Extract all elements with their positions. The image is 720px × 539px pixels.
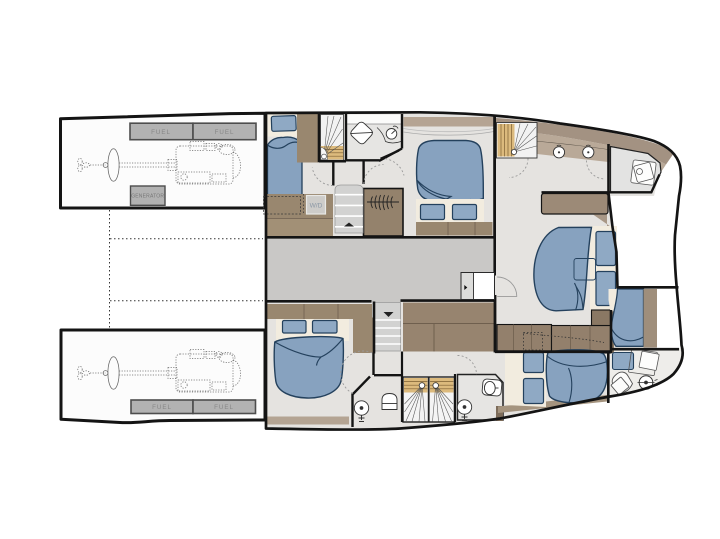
- svg-text:GENERATOR: GENERATOR: [131, 194, 164, 200]
- svg-text:W/D: W/D: [310, 203, 323, 210]
- svg-text:FUEL: FUEL: [214, 404, 234, 411]
- svg-text:FUEL: FUEL: [152, 404, 172, 411]
- svg-text:FUEL: FUEL: [215, 129, 235, 136]
- svg-text:FUEL: FUEL: [151, 129, 171, 136]
